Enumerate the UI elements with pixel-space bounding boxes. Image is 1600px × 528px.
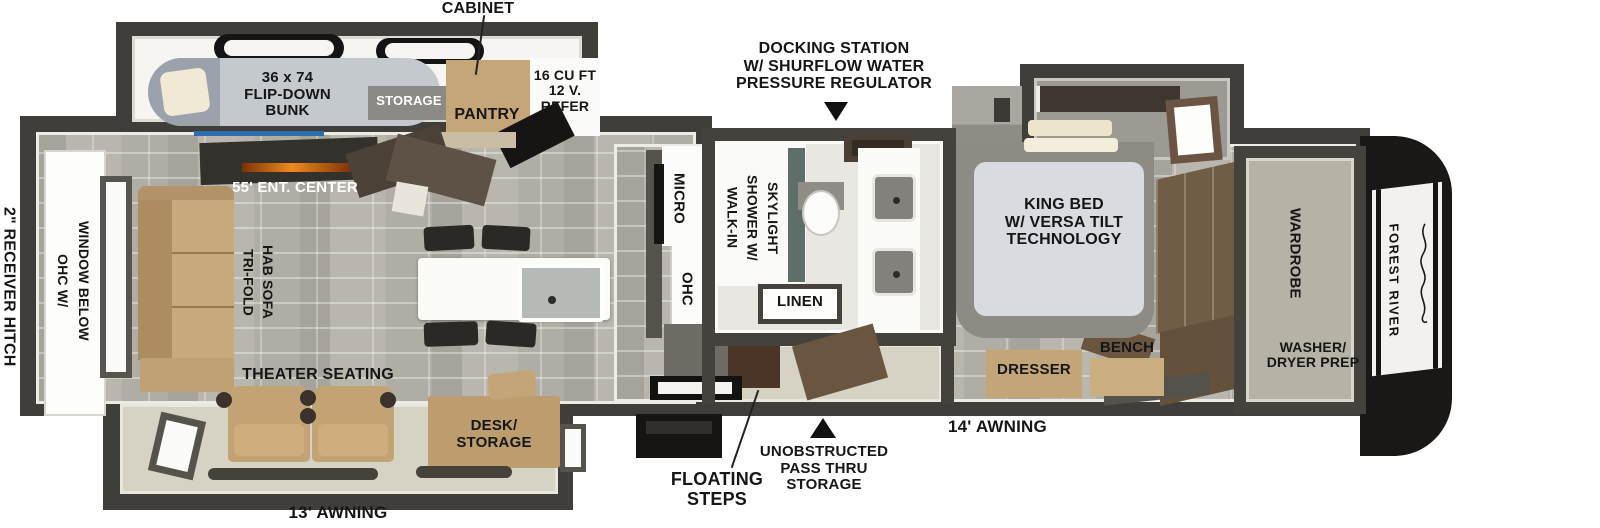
slide-window-pane [156,420,198,472]
washer-dryer-label: WASHER/ DRYER PREP [1258,340,1368,371]
floorplan-canvas: FOREST RIVER CABINET 36 x 74 FLIP-DOWN B… [0,0,1600,528]
shower-label: WALK-IN SHOWER W/ SKYLIGHT [722,150,784,286]
bedroom-window [1165,96,1222,164]
floating-steps-label: FLOATING STEPS [658,470,776,510]
brand-signature-icon [1415,217,1433,331]
bedroom-window-pane [1174,105,1214,156]
wardrobe-label: WARDROBE [1286,186,1314,320]
vanity-sink-1 [872,174,916,222]
entry-side-window [560,424,586,472]
entry-threshold [650,376,742,400]
rear-window-frame [100,176,132,378]
vanity-faucet [893,197,900,204]
cupholder [300,390,316,406]
awning-front-label: 14' AWNING [948,418,1083,437]
bar-stool [485,320,537,347]
island-sink [518,264,604,322]
sofa-label: TRI-FOLD HAB SOFA [238,222,276,342]
king-bed-label: KING BED W/ VERSA TILT TECHNOLOGY [986,196,1142,249]
theater-seating-label: THEATER SEATING [234,366,402,384]
sofa-ottoman [140,358,234,392]
docking-station-label: DOCKING STATION W/ SHURFLOW WATER PRESSU… [728,40,940,93]
bench-label: BENCH [1088,340,1166,357]
cupholder [300,408,316,424]
bedroom-skylight [1036,86,1180,112]
cap-stripe [1433,182,1438,369]
kitchen-counter-upper [438,132,516,148]
slide-wall-window-slot [416,466,512,478]
desk-storage-label: DESK/ STORAGE [438,418,550,451]
linen-label: LINEN [762,294,838,311]
island-faucet [548,296,556,304]
ohc-window-label: OHC W/ WINDOW BELOW [52,160,96,402]
entry-side-window-pane [565,429,581,467]
bar-stool [423,225,474,252]
awning-rear-label: 13' AWNING [258,504,418,523]
ent-center-label: 55' ENT. CENTER [212,180,378,197]
front-cap-band: FOREST RIVER [1372,182,1442,377]
desk-chair [487,370,537,401]
cabinet-label: CABINET [428,0,528,18]
cap-stripe [1376,189,1381,376]
headboard-shelf [1028,120,1112,136]
up-arrow-icon [810,418,836,438]
bar-stool [481,225,530,251]
refer-label: 16 CU FT 12 V. REFER [524,68,606,114]
toilet-bowl [802,190,840,236]
receiver-hitch-label: 2" RECEIVER HITCH [0,162,24,412]
theater-seat-left-cushion [234,424,304,456]
cupholder [380,392,396,408]
fireplace [242,163,352,172]
passthru-wall-right [941,334,954,404]
exterior-entry-step-tread [646,421,712,434]
led-accent-strip [194,131,324,136]
vanity-faucet [893,271,900,278]
exterior-entry-step [636,414,722,458]
bench [1090,358,1164,396]
entry-threshold-inner [658,382,732,394]
bedroom-slide-side-window [994,98,1010,122]
tri-fold-sofa [172,200,234,360]
kitchen-counter-end [392,181,429,216]
bunk-pillow [159,67,211,117]
bedroom-wardrobe-doors [1156,160,1242,334]
headboard [1024,138,1118,152]
microwave [654,164,664,244]
theater-seat-right-cushion [318,424,388,456]
passthru-wall-left [702,334,715,404]
sofa-back [138,200,174,360]
bunk-window-2-pane [385,43,475,59]
dresser-label: DRESSER [988,362,1080,379]
theater-seat-left [228,386,310,462]
down-arrow-icon [824,102,848,121]
bunk-window-1-pane [224,40,334,56]
flip-down-bunk-label: 36 x 74 FLIP-DOWN BUNK [205,70,370,120]
ohc-label: OHC [678,256,704,322]
slide-wall-window-slot [208,468,378,480]
bar-stool [424,321,479,347]
micro-label: MICRO [670,156,700,240]
rear-window-pane [106,182,126,372]
vanity-sink-2 [872,248,916,296]
brand-name: FOREST RIVER [1386,197,1400,365]
cupholder [216,392,232,408]
